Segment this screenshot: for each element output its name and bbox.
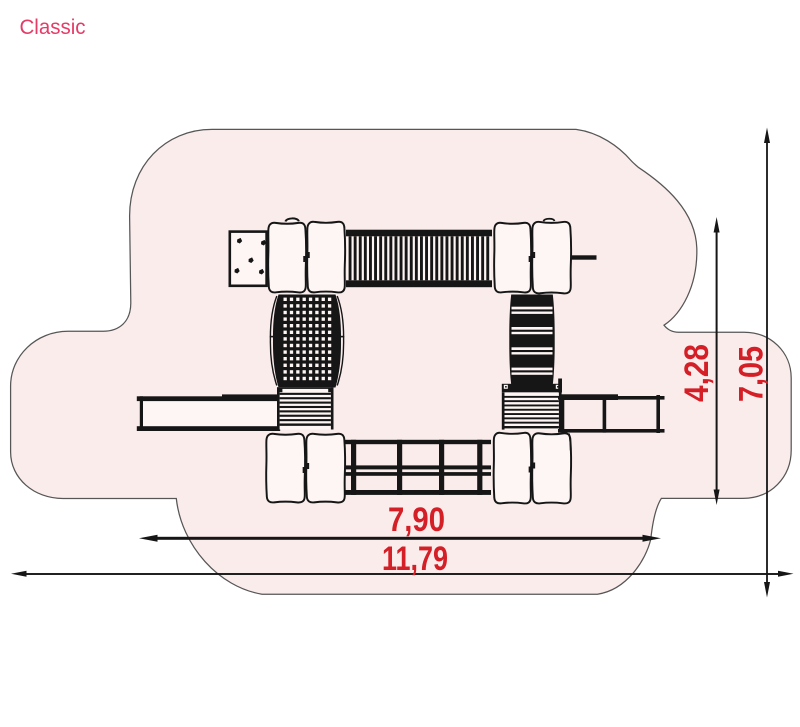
svg-text:4,28: 4,28: [678, 344, 716, 402]
svg-text:7,05: 7,05: [733, 346, 771, 402]
svg-text:Classic: Classic: [20, 15, 86, 39]
svg-text:11,79: 11,79: [382, 540, 448, 578]
svg-text:7,90: 7,90: [388, 501, 445, 539]
